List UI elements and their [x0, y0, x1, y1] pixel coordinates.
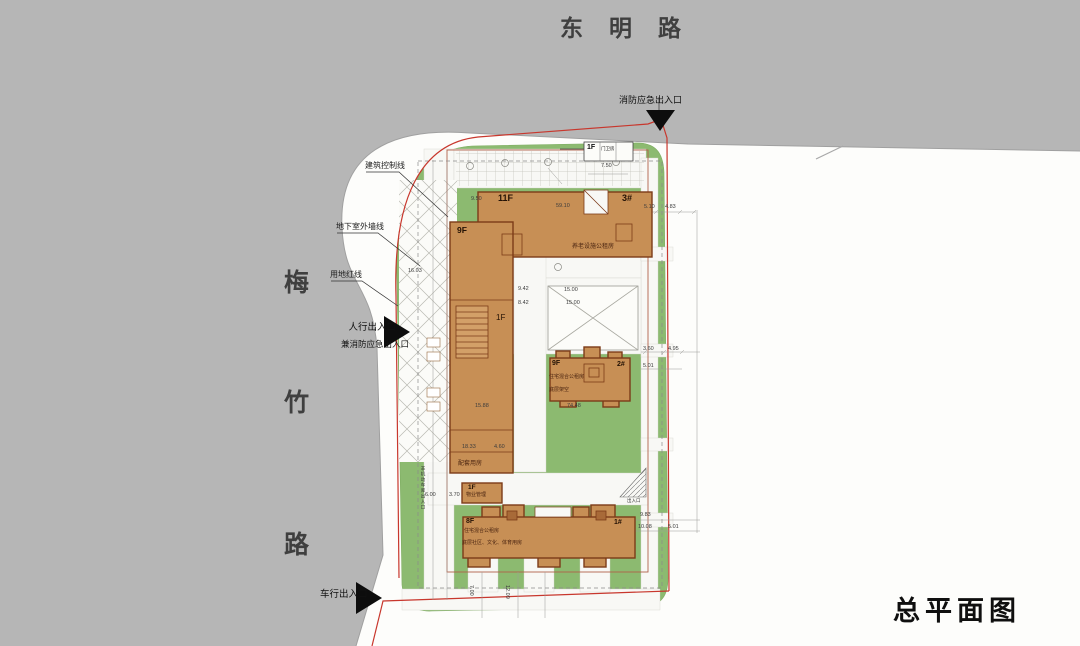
dimension-label: 5.10 [644, 204, 655, 210]
road-label-meizhu-char2: 竹 [284, 390, 309, 418]
road-label-meizhu-char3: 路 [284, 532, 309, 560]
bike-garage-label: 非机动车库出入口 [420, 466, 425, 510]
building2-use-label2: 底层架空 [549, 388, 569, 394]
callout-basement-line: 地下室外墙线 [336, 223, 384, 232]
drawing-title: 总平面图 [893, 597, 1021, 627]
property-floors-label: 1F [468, 484, 476, 491]
building3-use-label: 养老设施公租房 [572, 244, 614, 251]
building3-number-label: 3# [622, 194, 632, 204]
dimension-label: 4.95 [668, 346, 679, 352]
building1-number-label: 1# [614, 519, 622, 527]
building1-floors-label: 8F [466, 518, 474, 526]
dimension-label: 16.03 [408, 268, 422, 274]
building2-floors-label: 9F [552, 360, 560, 368]
building2-number-label: 2# [617, 361, 625, 369]
dimension-label: 6.00 [425, 492, 436, 498]
building1-use-label1: 住宅混合公租房 [464, 529, 499, 535]
dimension-label: 9.83 [640, 512, 651, 518]
fire-exit-label: 消防应急出入口 [619, 96, 682, 106]
dimension-label: 18.33 [462, 444, 476, 450]
dimension-label: 7.00 [468, 585, 474, 596]
dimension-label: 59.10 [556, 203, 570, 209]
dimension-label: 12.09 [504, 585, 510, 599]
dimension-label: 15.00 [564, 287, 578, 293]
site-plan-page: 东明路 梅 竹 路 总平面图 消防应急出入口 人行出入口 兼消防应急出入口 车行… [0, 0, 1080, 646]
dimension-label: 5.01 [643, 363, 654, 369]
dimension-label: 9.50 [471, 196, 482, 202]
dimension-label: 4.83 [665, 204, 676, 210]
site-plan-drawing [0, 0, 1080, 646]
tower-use-label: 配套用房 [458, 461, 482, 468]
callout-control-line: 建筑控制线 [365, 162, 405, 171]
dimension-label: 7.50 [601, 163, 612, 169]
ramp-label: 出入口 [627, 499, 641, 504]
dimension-label: 8.42 [518, 300, 529, 306]
dimension-label: 5.01 [668, 524, 679, 530]
building2-use-label1: 住宅混合公租房 [549, 375, 584, 381]
dimension-label: 15.00 [566, 300, 580, 306]
tower-floors-label: 9F [457, 226, 467, 235]
dimension-label: 15.88 [475, 403, 489, 409]
guard-floors-label: 1F [587, 144, 595, 152]
vehicle-entrance-label: 车行出入口 [320, 590, 368, 600]
dimension-label: 3.70 [449, 492, 460, 498]
dimension-label: 74.48 [567, 403, 581, 409]
dimension-label: 9.42 [518, 286, 529, 292]
road-label-dongming: 东明路 [560, 16, 707, 41]
dimension-label: 4.60 [494, 444, 505, 450]
dimension-label: 10.08 [638, 524, 652, 530]
pedestrian-entrance-label: 人行出入口 [332, 323, 396, 333]
guard-use-label: 门卫房 [601, 147, 615, 152]
building3-floors-label: 11F [498, 194, 513, 204]
pedestrian-entrance-sublabel: 兼消防应急出入口 [341, 340, 409, 349]
tower-ground-label: 1F [496, 314, 505, 323]
building1-use-label2: 底层社区、文化、体育用房 [462, 541, 522, 547]
property-use-label: 物业管理 [466, 493, 486, 499]
callout-red-line: 用地红线 [330, 271, 362, 280]
dimension-label: 3.60 [643, 346, 654, 352]
road-label-meizhu-char1: 梅 [284, 270, 309, 298]
